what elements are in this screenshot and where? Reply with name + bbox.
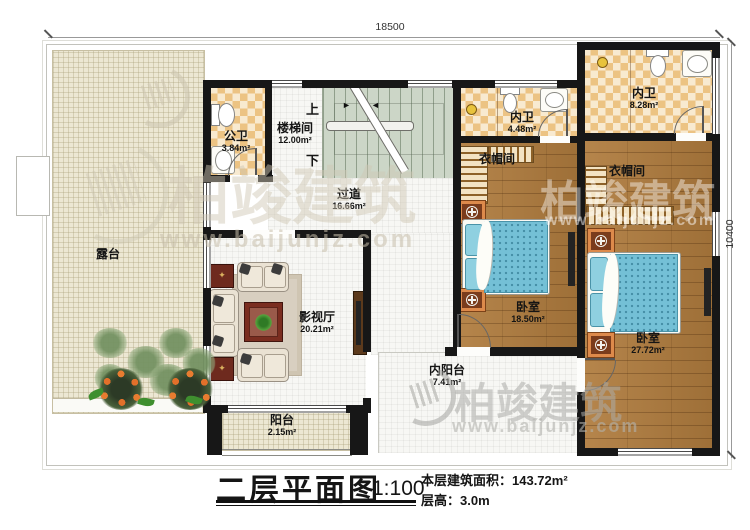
toilet xyxy=(218,103,235,127)
balcony-railing xyxy=(222,449,352,456)
corridor-label: 过道 xyxy=(318,188,380,201)
shrub xyxy=(92,328,128,358)
mattress xyxy=(484,221,548,293)
tv-panel xyxy=(356,301,361,345)
toilet xyxy=(650,55,666,77)
inner-balcony-area: 7.41m² xyxy=(412,377,482,387)
door-opening xyxy=(676,133,706,141)
terrace-label: 露台 xyxy=(78,248,138,261)
lamp-icon xyxy=(466,294,478,306)
nightstand xyxy=(587,228,615,254)
plan-scale: 1:100 xyxy=(372,477,425,501)
lamp-icon xyxy=(466,206,478,218)
public-bath-area: 3.84m² xyxy=(206,143,266,153)
star-icon: ✦ xyxy=(218,364,226,373)
side-table: ✦ xyxy=(210,264,234,288)
window xyxy=(272,80,302,88)
plant-icon xyxy=(255,314,272,331)
inner-bath-small-area: 4.48m² xyxy=(492,124,552,134)
balcony-sliding-door xyxy=(228,405,346,413)
dimension-height-label: 10400 xyxy=(724,206,736,262)
exterior-ledge xyxy=(16,156,50,216)
star-icon: ✦ xyxy=(218,271,226,280)
public-bath-label: 公卫 xyxy=(206,130,266,143)
corridor-strip xyxy=(371,233,453,355)
clothes-rack xyxy=(586,206,674,225)
tv-panel xyxy=(568,232,575,286)
stairwell-label: 楼梯间 xyxy=(264,122,326,135)
lamp-icon xyxy=(595,235,607,247)
window xyxy=(495,80,557,88)
stairs-down-label: 下 xyxy=(306,150,319,169)
stairs-up-label: 上 xyxy=(306,99,319,118)
nightstand xyxy=(587,332,615,358)
window xyxy=(203,240,211,288)
sink xyxy=(687,55,708,73)
window xyxy=(712,58,720,134)
shower-valve xyxy=(597,57,608,68)
door-opening xyxy=(540,136,570,143)
balcony-label: 阳台 xyxy=(252,414,312,427)
stairwell-area: 12.00m² xyxy=(264,135,326,145)
door-opening xyxy=(577,358,585,392)
balcony-area: 2.15m² xyxy=(252,427,312,437)
inner-balcony-label: 内阳台 xyxy=(412,364,482,377)
sink-counter xyxy=(682,50,712,77)
wall xyxy=(350,410,368,455)
window xyxy=(712,212,720,256)
door-opening xyxy=(457,347,490,356)
window xyxy=(408,80,452,88)
theater-area: 20.21m² xyxy=(282,324,352,334)
corridor-area: 16.66m² xyxy=(318,201,380,211)
wall xyxy=(577,45,585,88)
dimension-line-top xyxy=(48,37,720,38)
bedroom-left-area: 18.50m² xyxy=(498,314,558,324)
window xyxy=(618,448,692,456)
lamp-icon xyxy=(595,339,607,351)
door-opening xyxy=(243,230,295,238)
wall xyxy=(363,230,371,352)
floor-plan-canvas: 18500 10400 ► ◄ xyxy=(0,0,750,530)
tv-panel xyxy=(704,268,711,316)
mattress xyxy=(610,254,678,332)
title-underline xyxy=(216,500,416,503)
wall xyxy=(207,410,222,455)
sink xyxy=(545,92,564,108)
coffee-table xyxy=(244,302,283,342)
floor-height-note: 层高：3.0m xyxy=(421,490,490,509)
door-opening xyxy=(230,175,258,182)
inner-bath-large-area: 8.28m² xyxy=(614,100,674,110)
bedroom-right-area: 27.72m² xyxy=(614,345,682,355)
theater-label: 影视厅 xyxy=(282,311,352,324)
bedroom-left-label: 卧室 xyxy=(498,301,558,314)
nightstand xyxy=(458,288,486,312)
stair-arrow-icon: ► xyxy=(342,101,351,110)
flower-cluster xyxy=(166,368,214,410)
cloakroom-right-label: 衣帽间 xyxy=(596,165,658,178)
inner-bath-large-label: 内卫 xyxy=(614,87,674,100)
floor-area-note: 本层建筑面积：143.72m² xyxy=(421,470,568,489)
shower-valve xyxy=(466,104,477,115)
dimension-width-label: 18500 xyxy=(360,21,420,33)
wall xyxy=(453,80,461,350)
title-underline-thin xyxy=(216,505,416,506)
inner-bath-small-label: 内卫 xyxy=(492,111,552,124)
stair-arrow-icon: ◄ xyxy=(371,101,380,110)
wall xyxy=(577,42,720,50)
terrace-door-window xyxy=(203,183,211,227)
cloakroom-left-label: 衣帽间 xyxy=(466,153,528,166)
wall xyxy=(363,398,371,413)
bedroom-right-label: 卧室 xyxy=(614,332,682,345)
